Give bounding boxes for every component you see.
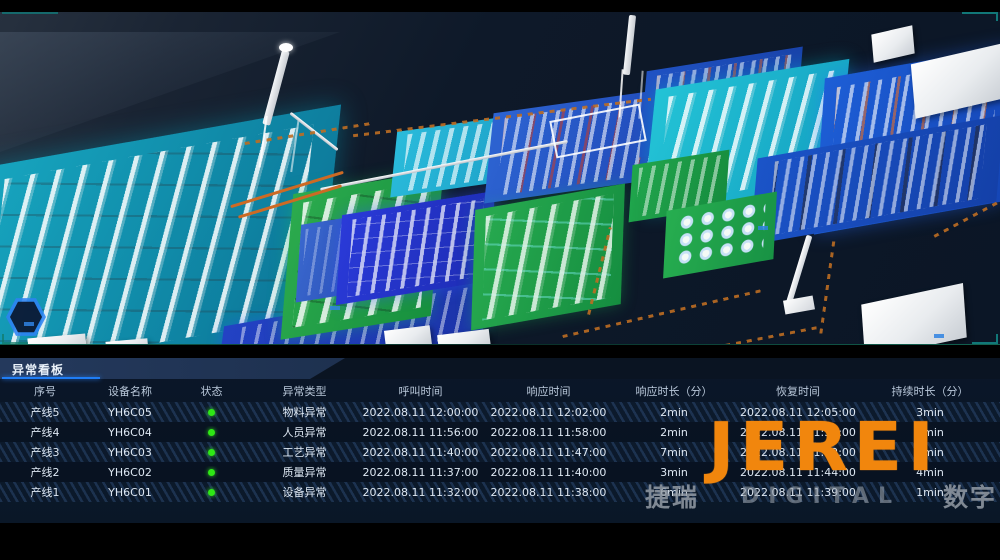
conveyor-dashed-path [819, 238, 835, 333]
cell-resp: 2022.08.11 11:38:00 [485, 486, 612, 499]
column-header-device: 设备名称 [90, 383, 170, 399]
chimney-cap [279, 43, 293, 52]
cell-status [170, 446, 253, 459]
cell-call: 2022.08.11 12:00:00 [356, 406, 485, 419]
column-header-recover: 恢复时间 [736, 383, 860, 399]
dashboard-screen: 异常看板 序号设备名称状态异常类型呼叫时间响应时间响应时长（分）恢复时间持续时长… [0, 0, 1000, 560]
column-header-seq: 序号 [0, 383, 90, 399]
conveyor-dashed-path [649, 325, 821, 344]
table-row[interactable]: 产线3YH6C03工艺异常2022.08.11 11:40:002022.08.… [0, 442, 1000, 462]
cell-recover: 2022.08.11 12:05:00 [736, 406, 860, 419]
cell-status [170, 426, 253, 439]
cell-call: 2022.08.11 11:37:00 [356, 466, 485, 479]
table-body: 产线5YH6C05物料异常2022.08.11 12:00:002022.08.… [0, 402, 1000, 502]
cell-seq: 产线2 [0, 464, 90, 480]
chimney-tower-center [623, 15, 636, 75]
cell-status [170, 466, 253, 479]
cell-recover: 2022.08.11 11:52:00 [736, 446, 860, 459]
column-header-call: 呼叫时间 [356, 383, 485, 399]
cell-seq: 产线5 [0, 404, 90, 420]
column-header-resp_dur: 响应时长（分） [612, 383, 736, 399]
cell-status [170, 406, 253, 419]
cell-resp_dur: 7min [612, 446, 736, 459]
viewport-divider-line [0, 344, 1000, 345]
cell-call: 2022.08.11 11:32:00 [356, 486, 485, 499]
label-chip [24, 322, 34, 326]
frame-corner-bottom-right [972, 334, 998, 344]
chimney-truss-left [259, 116, 300, 172]
column-header-resp: 响应时间 [485, 383, 612, 399]
cell-recover: 2022.08.11 11:59:00 [736, 426, 860, 439]
label-chip [758, 226, 768, 230]
cell-device: YH6C03 [90, 446, 170, 459]
cell-recover: 2022.08.11 11:44:00 [736, 466, 860, 479]
white-warehouse-building [871, 25, 914, 63]
table-row[interactable]: 产线4YH6C04人员异常2022.08.11 11:56:002022.08.… [0, 422, 1000, 442]
table-row[interactable]: 产线5YH6C05物料异常2022.08.11 12:00:002022.08.… [0, 402, 1000, 422]
cell-dur: 4min [860, 466, 1000, 479]
table-header-row: 序号设备名称状态异常类型呼叫时间响应时间响应时长（分）恢复时间持续时长（分） [0, 379, 1000, 402]
cell-device: YH6C05 [90, 406, 170, 419]
status-dot [208, 409, 215, 416]
cell-resp_dur: 3min [612, 466, 736, 479]
cell-type: 设备异常 [253, 484, 356, 500]
column-header-type: 异常类型 [253, 383, 356, 399]
cell-resp: 2022.08.11 11:40:00 [485, 466, 612, 479]
label-chip [934, 334, 944, 338]
cell-device: YH6C01 [90, 486, 170, 499]
cell-type: 人员异常 [253, 424, 356, 440]
cell-dur: 3min [860, 406, 1000, 419]
cell-resp: 2022.08.11 12:02:00 [485, 406, 612, 419]
cell-dur: 3min [860, 426, 1000, 439]
cell-dur: 5min [860, 446, 1000, 459]
cell-resp_dur: 2min [612, 426, 736, 439]
cell-device: YH6C02 [90, 466, 170, 479]
status-dot [208, 429, 215, 436]
white-warehouse-building [861, 283, 967, 344]
cell-call: 2022.08.11 11:56:00 [356, 426, 485, 439]
frame-corner-top-right [962, 12, 998, 21]
cell-seq: 产线4 [0, 424, 90, 440]
anomaly-board-panel: 异常看板 序号设备名称状态异常类型呼叫时间响应时间响应时长（分）恢复时间持续时长… [0, 358, 1000, 523]
column-header-dur: 持续时长（分） [860, 383, 1000, 399]
cell-recover: 2022.08.11 11:39:00 [736, 486, 860, 499]
cell-type: 质量异常 [253, 464, 356, 480]
cell-seq: 产线1 [0, 484, 90, 500]
cell-status [170, 486, 253, 499]
cell-resp: 2022.08.11 11:47:00 [485, 446, 612, 459]
status-dot [208, 489, 215, 496]
cell-type: 工艺异常 [253, 444, 356, 460]
cell-seq: 产线3 [0, 444, 90, 460]
frame-corner-bottom-left [2, 334, 28, 344]
cell-device: YH6C04 [90, 426, 170, 439]
cell-call: 2022.08.11 11:40:00 [356, 446, 485, 459]
table-row[interactable]: 产线1YH6C01设备异常2022.08.11 11:32:002022.08.… [0, 482, 1000, 502]
cell-resp_dur: 6min [612, 486, 736, 499]
status-dot [208, 469, 215, 476]
status-dot [208, 449, 215, 456]
cell-resp_dur: 2min [612, 406, 736, 419]
cell-type: 物料异常 [253, 404, 356, 420]
cell-resp: 2022.08.11 11:58:00 [485, 426, 612, 439]
table-row[interactable]: 产线2YH6C02质量异常2022.08.11 11:37:002022.08.… [0, 462, 1000, 482]
label-chip [330, 306, 340, 310]
panel-title: 异常看板 [12, 361, 64, 378]
factory-3d-viewport[interactable] [0, 12, 1000, 344]
frame-corner-top-left [2, 12, 58, 18]
cell-dur: 1min [860, 486, 1000, 499]
title-underline [2, 377, 100, 379]
column-header-status: 状态 [170, 383, 253, 399]
panel-titlebar: 异常看板 [0, 358, 1000, 379]
crane-arm [786, 235, 813, 306]
